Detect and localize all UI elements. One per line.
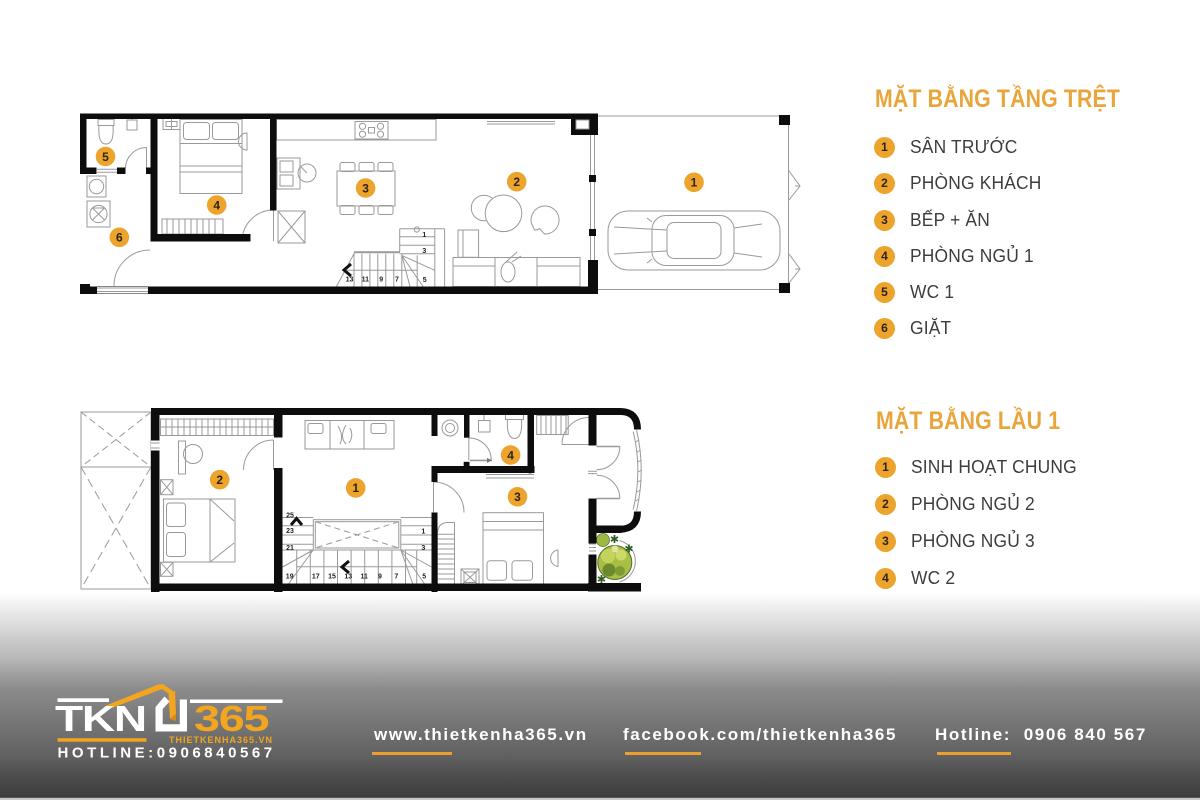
svg-text:19: 19 [286,574,294,581]
svg-text:1: 1 [691,176,698,190]
svg-text:THIETKENHA365.VN: THIETKENHA365.VN [169,735,273,745]
svg-text:3: 3 [514,490,521,504]
svg-text:11: 11 [360,574,368,581]
svg-text:9: 9 [379,277,383,284]
svg-text:5: 5 [422,574,426,581]
svg-text:1: 1 [352,481,359,495]
svg-text:23: 23 [286,528,294,535]
svg-text:3: 3 [422,248,426,255]
svg-text:25: 25 [286,512,294,519]
svg-text:3: 3 [362,181,369,195]
svg-text:365: 365 [194,698,269,739]
svg-text:21: 21 [286,545,294,552]
svg-text:3: 3 [421,545,425,552]
svg-text:HOTLINE:0906840567: HOTLINE:0906840567 [58,745,276,762]
svg-text:2: 2 [513,175,520,189]
svg-text:4: 4 [213,198,220,212]
svg-text:17: 17 [312,574,320,581]
svg-text:TKN: TKN [55,699,146,739]
svg-text:✱: ✱ [624,544,633,556]
svg-text:1: 1 [422,232,426,239]
svg-text:15: 15 [328,574,336,581]
svg-text:✱: ✱ [610,534,619,546]
svg-text:13: 13 [344,574,352,581]
svg-text:7: 7 [394,574,398,581]
svg-text:1: 1 [421,528,425,535]
svg-text:9: 9 [378,574,382,581]
svg-text:5: 5 [423,277,427,284]
svg-text:2: 2 [216,473,223,487]
svg-text:13: 13 [346,277,354,284]
svg-text:6: 6 [116,231,123,245]
svg-text:11: 11 [362,277,370,284]
svg-text:7: 7 [395,277,399,284]
svg-text:5: 5 [102,150,109,164]
svg-text:4: 4 [507,448,514,462]
